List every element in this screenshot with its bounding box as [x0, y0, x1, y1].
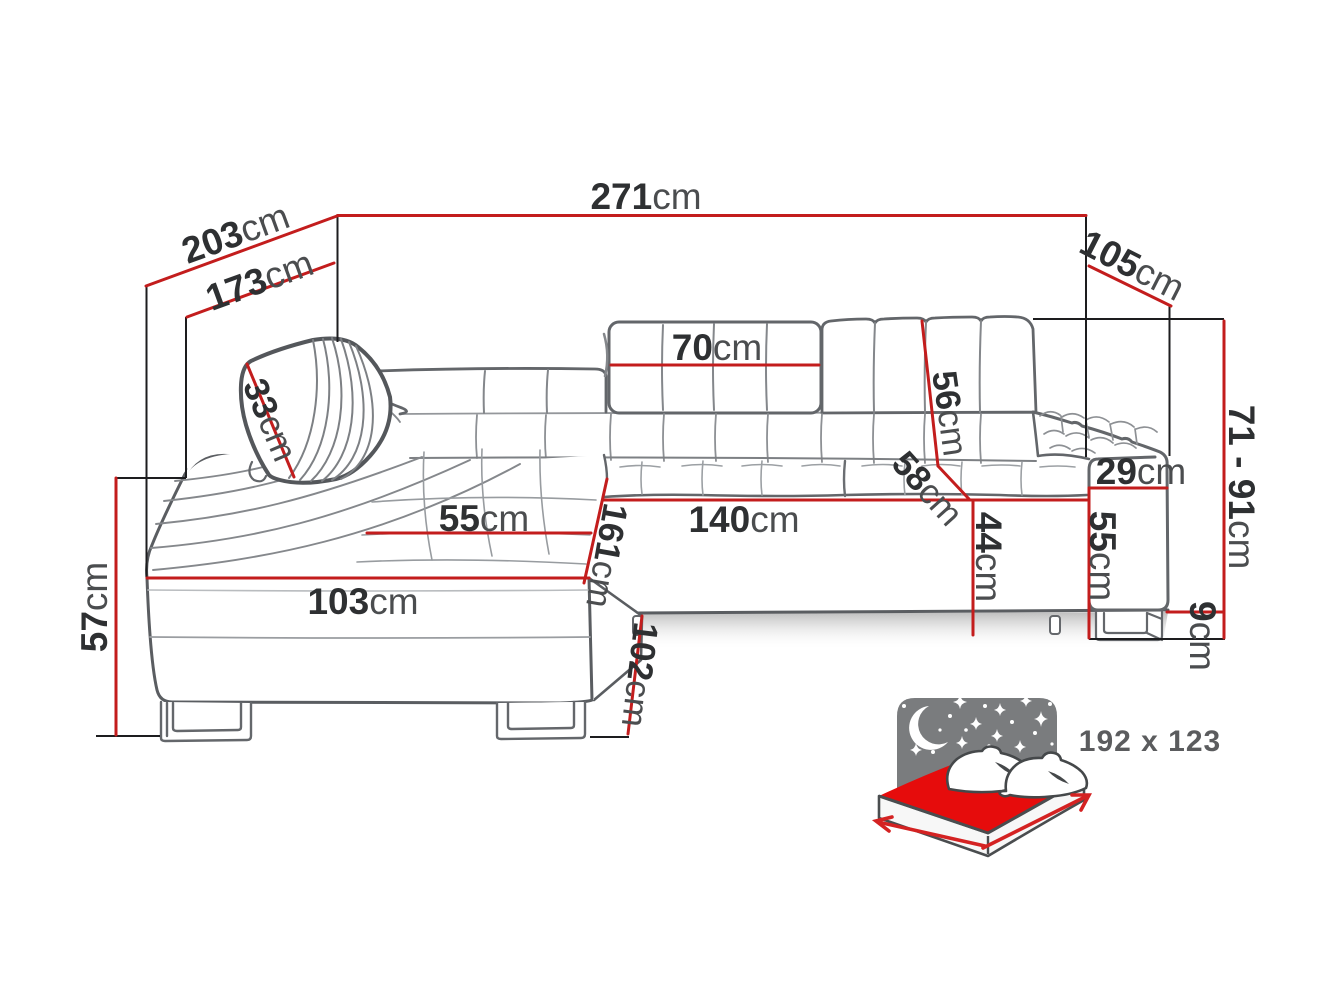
svg-text:271cm: 271cm — [590, 176, 701, 217]
svg-text:71 - 91cm: 71 - 91cm — [1221, 405, 1262, 570]
svg-text:70cm: 70cm — [672, 327, 762, 368]
svg-text:140cm: 140cm — [688, 499, 799, 540]
svg-text:29cm: 29cm — [1096, 451, 1186, 492]
svg-text:103cm: 103cm — [307, 581, 418, 622]
svg-text:57cm: 57cm — [74, 562, 115, 652]
svg-text:9cm: 9cm — [1182, 601, 1223, 671]
svg-text:55cm: 55cm — [1082, 511, 1123, 601]
svg-text:44cm: 44cm — [968, 512, 1009, 602]
svg-text:55cm: 55cm — [439, 498, 529, 539]
svg-text:192 x 123: 192 x 123 — [1079, 725, 1221, 758]
